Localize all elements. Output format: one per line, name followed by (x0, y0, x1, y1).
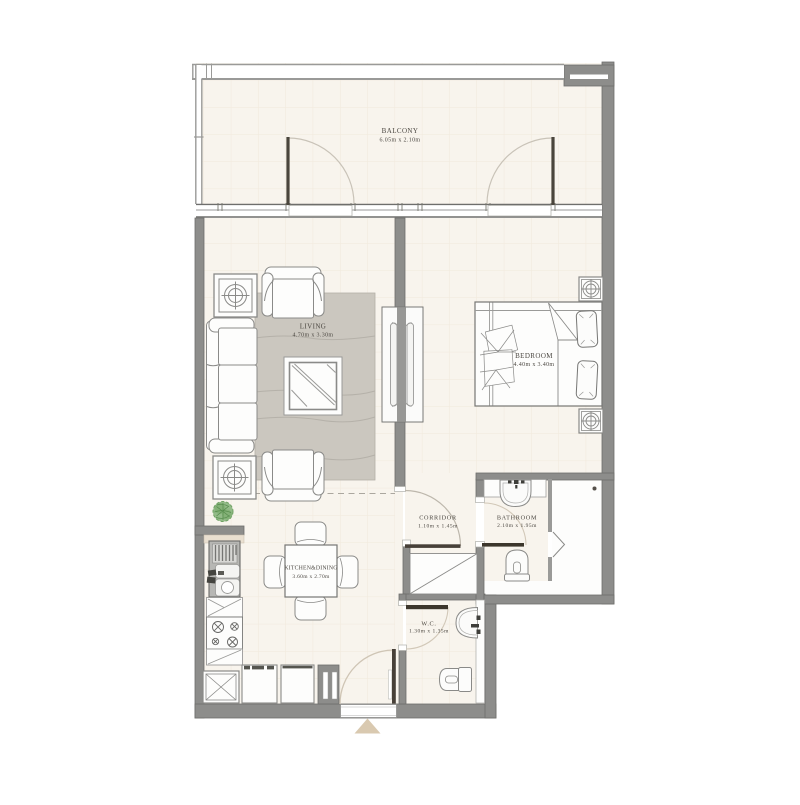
svg-text:LIVING: LIVING (300, 323, 327, 331)
svg-text:2.10m x 1.95m: 2.10m x 1.95m (497, 523, 537, 529)
svg-text:4.40m x 3.40m: 4.40m x 3.40m (514, 362, 555, 368)
svg-text:1.10m x 1.45m: 1.10m x 1.45m (418, 524, 458, 530)
svg-text:CORRIDOR: CORRIDOR (419, 515, 457, 522)
svg-text:4.70m x 3.30m: 4.70m x 3.30m (293, 333, 334, 339)
svg-text:1.30m x 1.35m: 1.30m x 1.35m (409, 629, 449, 635)
svg-text:BEDROOM: BEDROOM (515, 352, 553, 360)
svg-text:W.C.: W.C. (421, 621, 436, 628)
svg-text:BALCONY: BALCONY (382, 127, 419, 135)
svg-text:6.05m x 2.10m: 6.05m x 2.10m (380, 138, 421, 144)
svg-text:BATHROOM: BATHROOM (497, 515, 537, 522)
svg-text:KITCHEN&DINING: KITCHEN&DINING (284, 566, 337, 572)
svg-text:3.60m x 2.70m: 3.60m x 2.70m (292, 574, 330, 580)
